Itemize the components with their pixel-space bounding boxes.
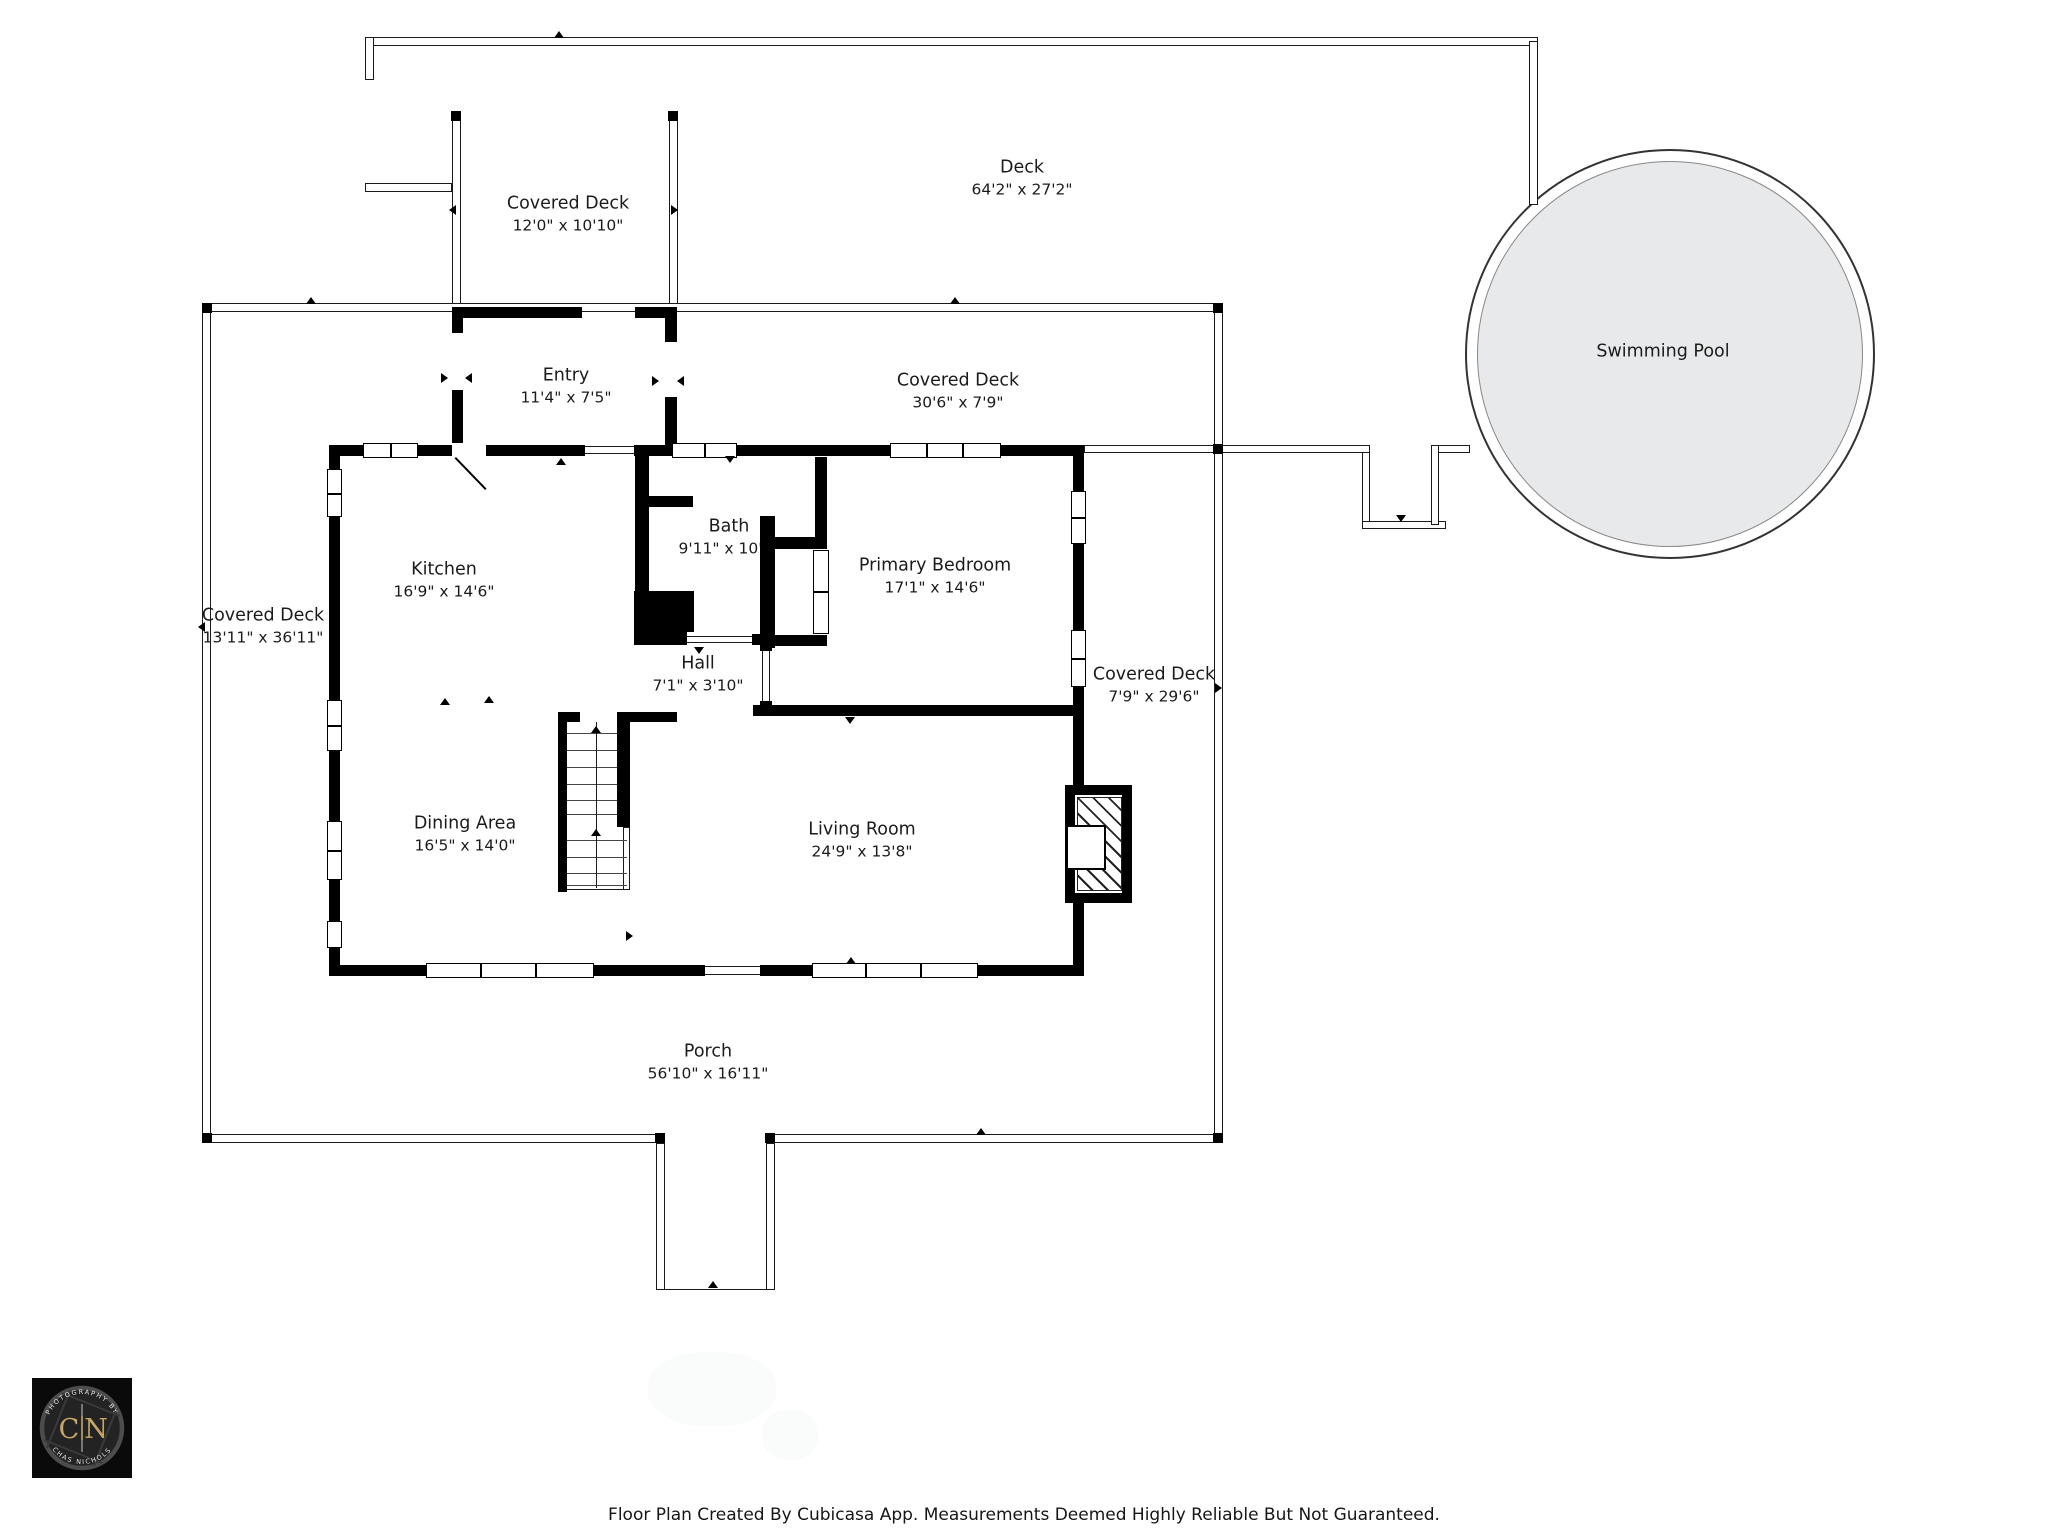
floor-plan: Deck 64'2" x 27'2" Covered Deck 12'0" x … — [0, 0, 2048, 1536]
rail-post — [1213, 303, 1223, 313]
deck-railing-left-cap — [365, 37, 374, 80]
stair-wall-right — [617, 712, 630, 827]
boundary-bottom-right — [766, 1134, 1223, 1143]
room-name: Covered Deck — [897, 370, 1019, 393]
dimension-tick — [725, 456, 735, 463]
deck-railing-stub — [365, 183, 452, 192]
bath-wall-stub — [649, 496, 693, 507]
dimension-tick — [554, 31, 564, 38]
hall-wall-right — [760, 635, 827, 646]
room-dimensions: 16'5" x 14'0" — [414, 835, 516, 855]
dimension-tick — [1396, 515, 1406, 522]
dimension-tick — [694, 647, 704, 654]
threshold-line — [585, 453, 634, 454]
porch-step-rail-left — [656, 1143, 665, 1290]
rail-post — [451, 111, 461, 121]
door-opening — [687, 632, 752, 647]
dimension-tick — [1076, 601, 1083, 611]
room-label-deck: Deck 64'2" x 27'2" — [972, 157, 1073, 200]
dimension-tick — [1215, 683, 1222, 693]
closet-wall — [815, 457, 827, 549]
dimension-tick — [198, 622, 205, 632]
room-dimensions: 64'2" x 27'2" — [972, 179, 1073, 199]
deck-railing-top — [365, 37, 1538, 46]
watermark-blob — [648, 1352, 776, 1426]
porch-step-rail-right — [766, 1143, 775, 1290]
stair-stringer — [596, 722, 597, 888]
room-dimensions: 16'9" x 14'6" — [394, 581, 495, 601]
room-name: Porch — [648, 1041, 769, 1064]
window — [327, 700, 342, 751]
room-dimensions: 11'4" x 7'5" — [520, 387, 611, 407]
dimension-tick — [950, 297, 960, 304]
room-dimensions: 30'6" x 7'9" — [897, 392, 1019, 412]
stair-rail — [623, 827, 630, 890]
window — [327, 921, 342, 948]
rail-post — [1213, 1133, 1223, 1143]
room-name: Hall — [652, 653, 743, 676]
threshold-line — [762, 651, 763, 701]
room-label-primary-bedroom: Primary Bedroom 17'1" x 14'6" — [859, 555, 1011, 598]
room-label-living-room: Living Room 24'9" x 13'8" — [808, 819, 915, 862]
threshold-line — [687, 636, 752, 637]
door-opening — [758, 651, 774, 701]
stair-wall-left — [558, 712, 567, 892]
fireplace-firebox — [1066, 825, 1106, 870]
room-label-hall: Hall 7'1" x 3'10" — [652, 653, 743, 696]
stair-edge — [558, 889, 630, 890]
dimension-tick — [677, 376, 684, 386]
dimension-tick — [484, 696, 494, 703]
dimension-tick — [440, 698, 450, 705]
pool-walkway-rail — [1084, 445, 1370, 453]
closet-door — [813, 550, 829, 634]
window — [1071, 491, 1086, 544]
dimension-tick — [465, 373, 472, 383]
dimension-tick — [626, 931, 633, 941]
room-name: Swimming Pool — [1596, 341, 1729, 364]
pool-walkway-rail — [1431, 445, 1439, 525]
room-label-covered-deck-top: Covered Deck 12'0" x 10'10" — [507, 193, 629, 236]
dimension-tick — [846, 957, 856, 964]
dimension-tick — [708, 1281, 718, 1288]
window — [363, 443, 418, 458]
logo-initial-left: C — [59, 1414, 80, 1445]
photographer-logo: C N PHOTOGRAPHY BY CHAS NICHOLS — [32, 1378, 132, 1478]
room-label-porch: Porch 56'10" x 16'11" — [648, 1041, 769, 1084]
window — [327, 469, 342, 517]
entry-wall-right — [665, 397, 677, 448]
room-label-covered-deck-upper: Covered Deck 30'6" x 7'9" — [897, 370, 1019, 413]
window — [327, 821, 342, 880]
door-opening — [452, 443, 486, 458]
disclaimer-text: Floor Plan Created By Cubicasa App. Meas… — [608, 1505, 1440, 1525]
rail-post — [655, 1133, 665, 1143]
porch-step-edge — [656, 1289, 775, 1290]
threshold-line — [585, 446, 634, 447]
watermark-blob — [762, 1410, 818, 1460]
rail-post — [202, 1133, 212, 1143]
window — [812, 963, 978, 978]
room-dimensions: 7'1" x 3'10" — [652, 675, 743, 695]
room-name: Dining Area — [414, 813, 516, 836]
dimension-tick — [441, 373, 448, 383]
room-name: Kitchen — [394, 559, 495, 582]
bath-wall-right — [760, 516, 775, 648]
pool-walkway-rail — [1362, 452, 1370, 528]
room-name: Covered Deck — [202, 605, 324, 628]
room-name: Covered Deck — [507, 193, 629, 216]
window — [1071, 630, 1086, 687]
threshold-line — [687, 642, 752, 643]
room-label-covered-deck-right: Covered Deck 7'9" x 29'6" — [1093, 664, 1215, 707]
boundary-right — [1214, 303, 1223, 1143]
stair-direction-arrow — [591, 726, 601, 733]
entry-wall-right — [665, 307, 677, 342]
rail-post — [1213, 444, 1223, 454]
dimension-tick — [671, 205, 678, 215]
dimension-tick — [332, 578, 339, 588]
dimension-tick — [845, 717, 855, 724]
rail-post — [668, 111, 678, 121]
dimension-tick — [449, 205, 456, 215]
boundary-left — [202, 303, 211, 1143]
dimension-tick — [652, 376, 659, 386]
stair-direction-arrow — [591, 829, 601, 836]
room-name: Entry — [520, 365, 611, 388]
threshold-line — [769, 651, 770, 701]
entry-wall-left — [452, 390, 463, 448]
room-label-dining-area: Dining Area 16'5" x 14'0" — [414, 813, 516, 856]
bath-wall-left — [635, 456, 649, 591]
deck-railing-right — [1529, 41, 1538, 205]
room-dimensions: 7'9" x 29'6" — [1093, 686, 1215, 706]
logo-initial-right: N — [84, 1414, 108, 1445]
room-name: Covered Deck — [1093, 664, 1215, 687]
room-dimensions: 24'9" x 13'8" — [808, 841, 915, 861]
room-name: Primary Bedroom — [859, 555, 1011, 578]
pool-walkway-rail — [1438, 445, 1470, 453]
threshold-line — [705, 974, 760, 975]
room-label-covered-deck-left: Covered Deck 13'11" x 36'11" — [202, 605, 324, 648]
boundary-bottom-left — [202, 1134, 665, 1143]
window — [426, 963, 594, 978]
entry-wall-top — [452, 307, 582, 318]
room-label-kitchen: Kitchen 16'9" x 14'6" — [394, 559, 495, 602]
room-label-entry: Entry 11'4" x 7'5" — [520, 365, 611, 408]
rail-post — [202, 303, 212, 313]
room-name: Living Room — [808, 819, 915, 842]
dimension-tick — [556, 458, 566, 465]
window — [890, 443, 1001, 458]
room-name: Deck — [972, 157, 1073, 180]
threshold-line — [705, 966, 760, 967]
dimension-tick — [306, 297, 316, 304]
boundary-top — [202, 303, 1223, 312]
rail-post — [765, 1133, 775, 1143]
room-dimensions: 56'10" x 16'11" — [648, 1063, 769, 1083]
logo-divider-gold — [81, 1416, 82, 1440]
room-dimensions: 13'11" x 36'11" — [202, 627, 324, 647]
door-leaf — [455, 457, 487, 490]
room-dimensions: 17'1" x 14'6" — [859, 577, 1011, 597]
living-wall-top — [753, 705, 1073, 716]
dimension-tick — [976, 1128, 986, 1135]
entry-wall-left — [452, 307, 463, 333]
room-label-swimming-pool: Swimming Pool — [1596, 341, 1729, 364]
room-dimensions: 12'0" x 10'10" — [507, 215, 629, 235]
